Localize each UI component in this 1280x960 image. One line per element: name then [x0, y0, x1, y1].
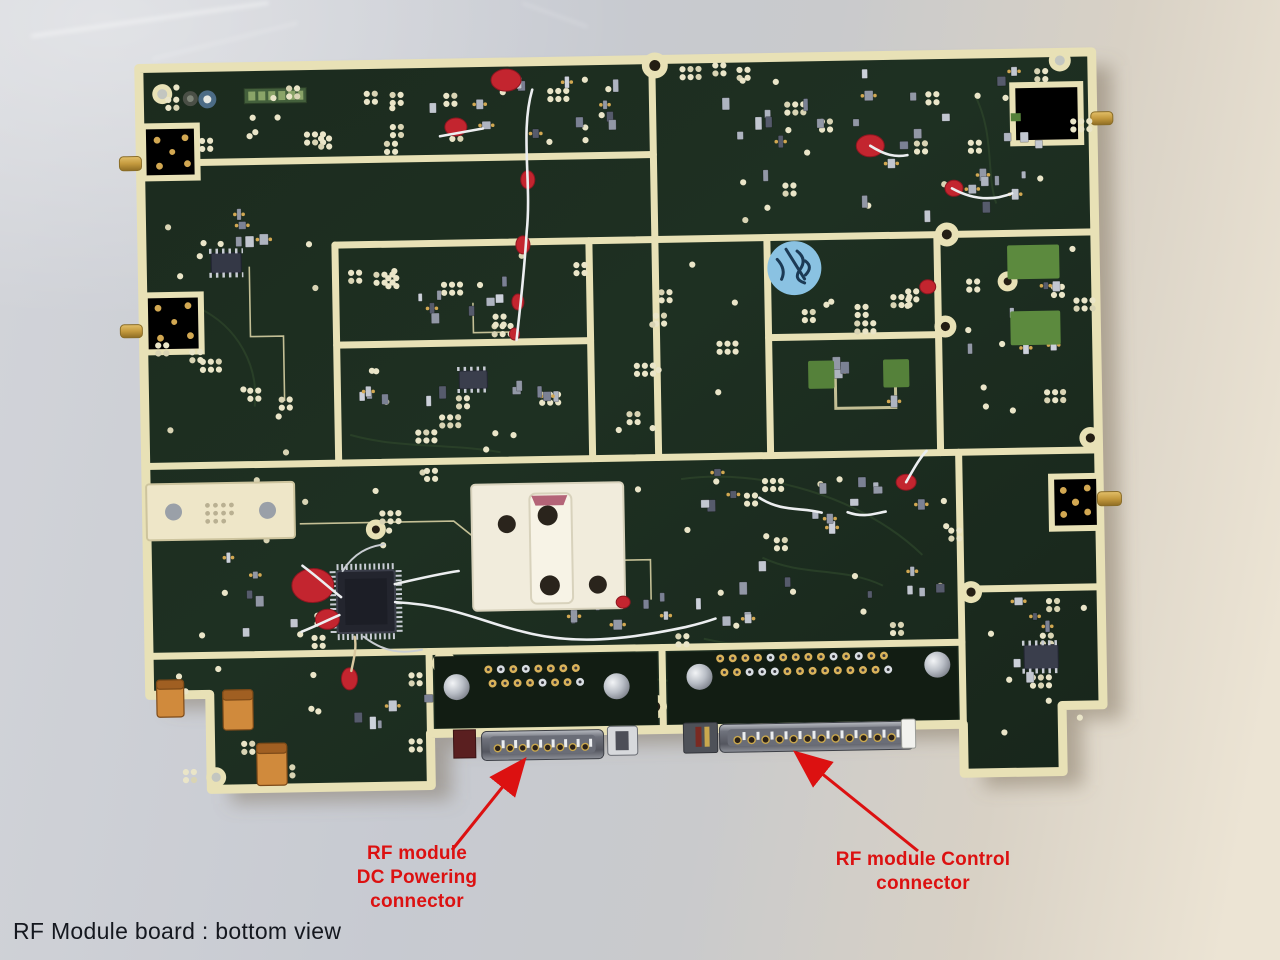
sma-stub-left-bottom: [120, 324, 142, 337]
annotation-line: connector: [337, 890, 497, 914]
sma-stub-right-middle: [1097, 491, 1121, 505]
annotation-arrows: [452, 756, 918, 851]
dsub-solder-strips: [434, 647, 958, 728]
pcb-photo: [0, 0, 1280, 960]
annotation-line: RF module: [337, 842, 497, 866]
shield-plate-left: [146, 482, 295, 541]
soic-chip: [457, 368, 489, 391]
annotation-arrow-control: [800, 756, 918, 851]
sma-stub-left-top: [119, 156, 141, 170]
xilinx-fpga: [333, 566, 400, 637]
annotation-arrow-dc: [452, 764, 521, 850]
sma-stub-right-top: [1091, 112, 1113, 125]
heatsink-plate: [471, 482, 625, 611]
photo-scene: RF module DC Powering connector RF modul…: [0, 0, 1280, 960]
annotation-control: RF module Control connector: [823, 848, 1023, 896]
annotation-line: connector: [823, 872, 1023, 896]
soic-chip: [1022, 643, 1060, 672]
annotation-line: RF module Control: [823, 848, 1023, 872]
annotation-line: DC Powering: [337, 866, 497, 890]
photo-caption: RF Module board : bottom view: [13, 918, 341, 944]
pcb-board: [116, 45, 1127, 791]
annotation-dc-powering: RF module DC Powering connector: [337, 842, 497, 914]
soic-chip: [209, 251, 243, 276]
